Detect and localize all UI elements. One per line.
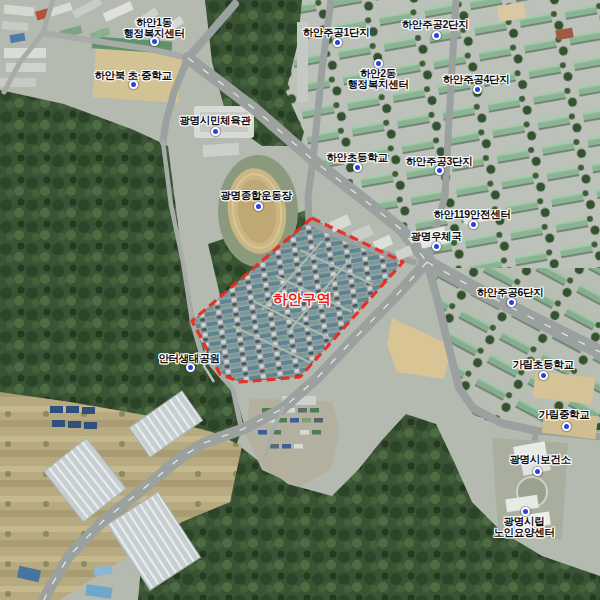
map-poi-gwangmyeong-stadium[interactable]: 광명종합운동장 (181, 190, 331, 201)
satellite-basemap (0, 0, 600, 600)
map-poi-label: 행정복지센터 (79, 28, 229, 39)
map-poi-label: 광명시민체육관 (140, 115, 290, 126)
map-poi-haan-119-safety-center[interactable]: 하안119안전센터 (397, 209, 547, 220)
map-poi-label: 노인요양센터 (449, 527, 599, 538)
map-poi-gwangmyeong-post-office[interactable]: 광명우체국 (361, 231, 511, 242)
map-poi-haan-jugong-6danji[interactable]: 하안주공6단지 (435, 287, 585, 298)
map-poi-label: 하안주공4단지 (401, 74, 551, 85)
map-poi-label: 광명우체국 (361, 231, 511, 242)
map-poi-label: 안터생태공원 (114, 353, 264, 364)
map-poi-haan-jugong-2danji[interactable]: 하안주공2단지 (360, 19, 510, 30)
map-poi-label: 광명종합운동장 (181, 190, 331, 201)
map-poi-anteo-eco-park[interactable]: 안터생태공원 (114, 353, 264, 364)
map-poi-gwangmyeong-elder-care-center[interactable]: 광명시립노인요양센터 (449, 516, 599, 538)
map-poi-gwangmyeong-health-center[interactable]: 광명시보건소 (465, 454, 600, 465)
map-poi-label: 하안주공6단지 (435, 287, 585, 298)
map-poi-haanbuk-elem-middle-school[interactable]: 하안북 초·중학교 (58, 70, 208, 81)
map-poi-label: 가림초등학교 (468, 359, 600, 370)
map-poi-haan1dong-welfare-center[interactable]: 하안1동행정복지센터 (79, 17, 229, 39)
map-poi-label: 가림중학교 (489, 409, 600, 420)
map-poi-label: 하안119안전센터 (397, 209, 547, 220)
map-canvas[interactable]: 하안구역 하안1동행정복지센터하안북 초·중학교광명시민체육관하안주공1단지하안… (0, 0, 600, 600)
map-poi-label: 광명시보건소 (465, 454, 600, 465)
map-poi-label: 하안북 초·중학교 (58, 70, 208, 81)
map-poi-gwangmyeong-civic-gym[interactable]: 광명시민체육관 (140, 115, 290, 126)
map-poi-haan-jugong-3danji[interactable]: 하안주공3단지 (364, 156, 514, 167)
map-poi-haan-jugong-4danji[interactable]: 하안주공4단지 (401, 74, 551, 85)
map-poi-label: 하안주공3단지 (364, 156, 514, 167)
map-poi-label: 하안주공2단지 (360, 19, 510, 30)
map-poi-garim-elementary-school[interactable]: 가림초등학교 (468, 359, 600, 370)
map-poi-garim-middle-school[interactable]: 가림중학교 (489, 409, 600, 420)
